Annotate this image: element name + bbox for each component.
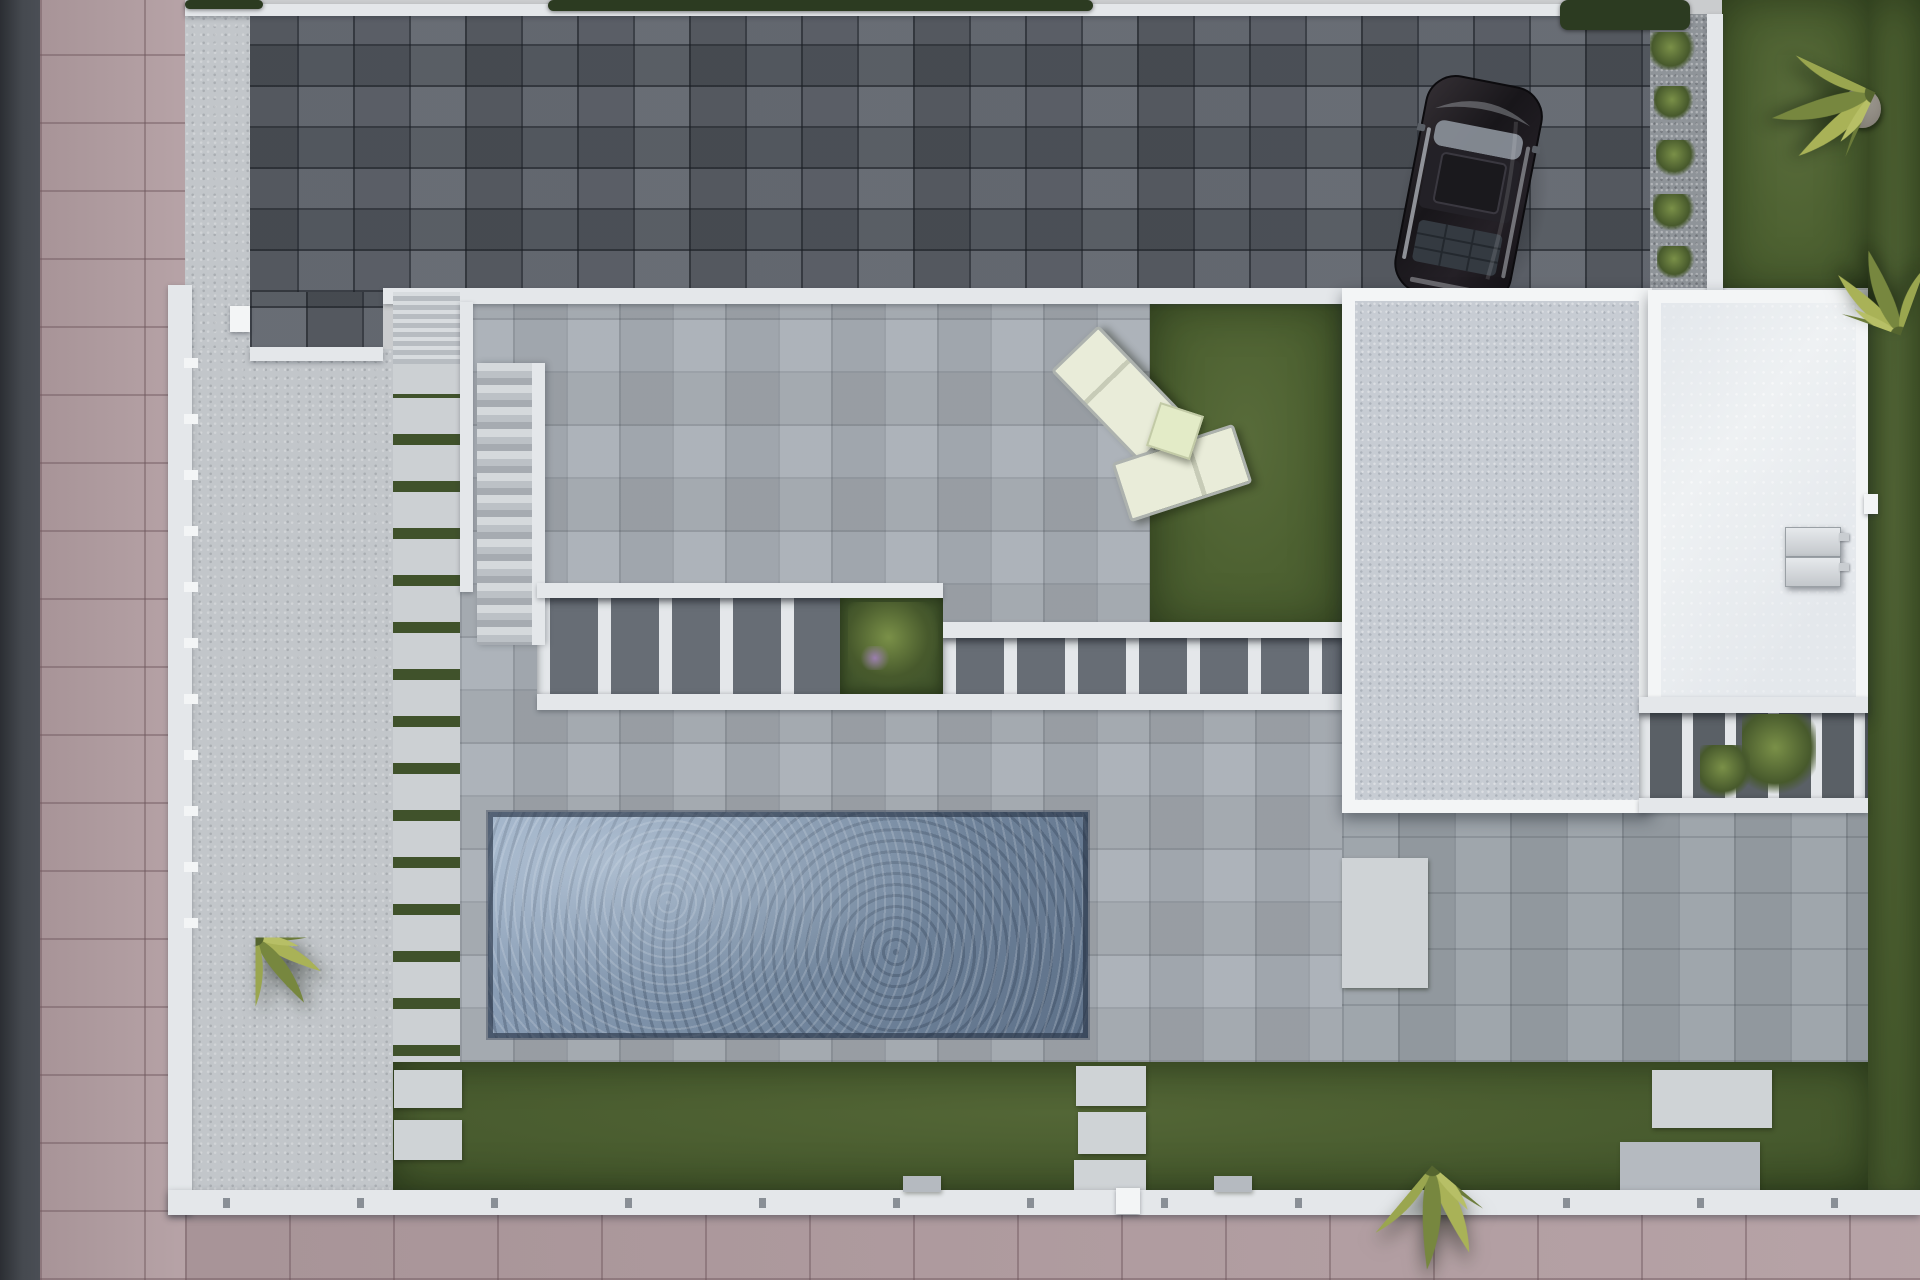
street-road [0, 0, 40, 1280]
top-hedge [548, 0, 1093, 11]
bottom-boundary-wall [168, 1190, 1920, 1215]
planter-shrub-1 [1650, 32, 1696, 70]
left-wall-cap [230, 306, 250, 332]
driveway-apron [185, 14, 250, 349]
right-pergola-shrub-2 [1700, 745, 1750, 801]
right-pergola-bottom-band [1639, 798, 1868, 813]
top-right-trees [1560, 0, 1690, 30]
side-yard-concrete [192, 349, 393, 1190]
ac-tab-1 [1839, 533, 1849, 541]
lawn-wall-block-2 [1214, 1176, 1252, 1192]
gate-marker [1116, 1188, 1140, 1214]
right-lawn-stone [1652, 1070, 1772, 1128]
ac-unit-1 [1785, 527, 1841, 557]
sidewalk-left [40, 0, 185, 1280]
villa-aerial-render [0, 0, 1920, 1280]
garage-roof-slab [1355, 301, 1639, 800]
top-left-hedge [185, 0, 263, 9]
planter-shrub-5 [1657, 246, 1695, 278]
swimming-pool [488, 812, 1088, 1038]
notch-bottom-wall [250, 347, 383, 361]
pergola-top-band-right [943, 622, 1342, 638]
pergola-top-band-left [537, 583, 943, 598]
center-stone-1 [1076, 1066, 1146, 1106]
walkway-stone-1 [394, 1070, 462, 1108]
walkway-green-joints [393, 364, 460, 1062]
roof-edge-tab [1864, 494, 1878, 514]
right-pergola-shrub-1 [1742, 714, 1816, 798]
driveway-notch [250, 292, 383, 349]
sidewalk-bottom [185, 1213, 1920, 1280]
long-staircase [477, 363, 545, 645]
planter-shrub-2 [1654, 86, 1694, 120]
palm-bottom-left [163, 845, 348, 1030]
center-stone-3 [1074, 1160, 1146, 1190]
pergola-openings-right [943, 638, 1342, 695]
ac-tab-2 [1839, 563, 1849, 571]
planter-shrub-4 [1653, 194, 1695, 230]
pergola-bottom-band [537, 694, 1342, 710]
courtyard-left-wall [460, 302, 473, 592]
pergola-planter-flowers [858, 646, 892, 670]
center-stone-2 [1078, 1112, 1146, 1154]
lawn-wall-block-1 [903, 1176, 941, 1192]
ac-unit-2 [1785, 557, 1841, 587]
slab-side-pad [1342, 858, 1428, 988]
entry-stairs [393, 292, 460, 364]
planter-shrub-3 [1656, 140, 1696, 176]
right-entry-pad [1620, 1142, 1760, 1190]
right-pergola-top-band [1639, 697, 1868, 713]
walkway-stone-2 [394, 1120, 462, 1160]
